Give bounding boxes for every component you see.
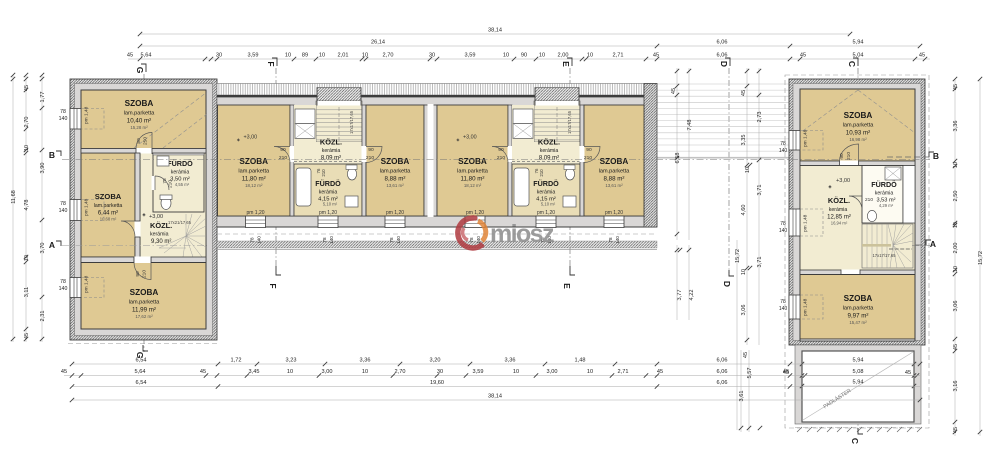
- svg-text:lam.parketta: lam.parketta: [238, 169, 270, 175]
- svg-text:15,72: 15,72: [735, 249, 741, 263]
- svg-text:kerámia: kerámia: [540, 148, 559, 154]
- svg-text:10: 10: [285, 53, 291, 59]
- svg-text:17x17/17,65: 17x17/17,65: [567, 110, 572, 134]
- svg-text:140: 140: [779, 306, 788, 312]
- svg-text:2,70: 2,70: [395, 369, 406, 375]
- svg-text:2,71: 2,71: [618, 369, 629, 375]
- svg-text:7,48: 7,48: [687, 120, 693, 131]
- svg-text:2,50: 2,50: [953, 191, 959, 202]
- svg-text:11,80 m²: 11,80 m²: [242, 176, 266, 183]
- svg-text:38,14: 38,14: [488, 394, 502, 400]
- svg-text:kerámia: kerámia: [150, 232, 169, 238]
- svg-text:3,77: 3,77: [677, 290, 683, 301]
- svg-text:1,77: 1,77: [40, 92, 46, 103]
- svg-text:2,31: 2,31: [40, 311, 46, 322]
- svg-text:45: 45: [905, 370, 911, 376]
- svg-text:SZOBA: SZOBA: [130, 288, 159, 297]
- svg-text:10: 10: [953, 222, 959, 228]
- svg-text:78: 78: [250, 237, 255, 243]
- svg-text:8,09 m²: 8,09 m²: [539, 156, 559, 162]
- svg-text:pm 1,20: pm 1,20: [386, 210, 404, 216]
- svg-text:2,00: 2,00: [558, 53, 569, 59]
- svg-text:3,11: 3,11: [24, 287, 30, 297]
- svg-text:38,14: 38,14: [488, 28, 502, 34]
- svg-text:lam.parketta: lam.parketta: [380, 169, 412, 175]
- svg-text:3,16: 3,16: [953, 381, 959, 392]
- svg-text:E: E: [562, 283, 572, 289]
- svg-text:45: 45: [743, 352, 749, 358]
- svg-text:90: 90: [521, 53, 527, 59]
- svg-text:17,62 m²: 17,62 m²: [135, 314, 153, 319]
- svg-text:45: 45: [24, 85, 30, 91]
- svg-text:6,06: 6,06: [717, 369, 728, 375]
- svg-text:3,00: 3,00: [547, 369, 558, 375]
- svg-text:C: C: [847, 61, 857, 67]
- svg-text:+3,00: +3,00: [463, 135, 477, 141]
- svg-text:F: F: [266, 61, 276, 66]
- svg-text:90: 90: [586, 147, 592, 153]
- svg-text:6,54: 6,54: [136, 358, 147, 364]
- svg-text:4,60: 4,60: [741, 205, 747, 216]
- svg-text:4,55 m²: 4,55 m²: [175, 182, 190, 187]
- svg-text:5,10 m²: 5,10 m²: [541, 202, 556, 207]
- svg-text:pm 1,48: pm 1,48: [84, 106, 90, 124]
- svg-text:210: 210: [846, 152, 852, 160]
- svg-text:140: 140: [59, 286, 68, 292]
- svg-text:5,94: 5,94: [853, 358, 864, 364]
- svg-text:pm 1,20: pm 1,20: [537, 210, 555, 216]
- svg-text:3,36: 3,36: [360, 358, 371, 364]
- svg-text:17x17/17,65: 17x17/17,65: [872, 253, 896, 258]
- svg-text:KÖZL.: KÖZL.: [320, 138, 342, 147]
- svg-text:2,70: 2,70: [24, 117, 30, 128]
- svg-text:45: 45: [953, 427, 959, 433]
- svg-text:3,06: 3,06: [741, 305, 747, 316]
- svg-text:E: E: [561, 61, 571, 67]
- svg-text:+3,00: +3,00: [836, 178, 850, 184]
- svg-text:90: 90: [368, 147, 374, 153]
- svg-text:pm 1,48: pm 1,48: [84, 198, 90, 216]
- svg-text:SZOBA: SZOBA: [381, 157, 410, 166]
- svg-text:SZOBA: SZOBA: [844, 111, 873, 120]
- svg-text:5,64: 5,64: [135, 369, 146, 375]
- svg-text:45: 45: [741, 90, 747, 96]
- svg-text:pm 1,48: pm 1,48: [803, 298, 809, 316]
- svg-text:26,14: 26,14: [371, 40, 385, 46]
- svg-text:lam.parketta: lam.parketta: [843, 306, 875, 312]
- svg-text:kerámia: kerámia: [537, 190, 556, 196]
- svg-text:3,45: 3,45: [249, 369, 260, 375]
- svg-text:FÜRDÖ: FÜRDÖ: [533, 179, 559, 188]
- svg-text:10: 10: [539, 53, 545, 59]
- svg-text:2,00: 2,00: [953, 243, 959, 254]
- svg-text:3,36: 3,36: [953, 121, 959, 132]
- svg-text:10: 10: [24, 145, 30, 151]
- svg-text:2,71: 2,71: [613, 53, 624, 59]
- svg-text:140: 140: [59, 116, 68, 122]
- svg-text:45: 45: [671, 88, 677, 94]
- svg-text:1,48: 1,48: [575, 358, 586, 364]
- svg-text:3,35: 3,35: [741, 135, 747, 146]
- svg-text:140: 140: [779, 148, 788, 154]
- svg-text:90: 90: [136, 138, 142, 144]
- svg-text:16,98 m²: 16,98 m²: [849, 137, 867, 142]
- svg-text:6,54: 6,54: [136, 380, 147, 386]
- svg-text:F: F: [268, 283, 278, 288]
- svg-text:2,01: 2,01: [338, 53, 349, 59]
- svg-text:15,47 m²: 15,47 m²: [849, 320, 867, 325]
- svg-text:10: 10: [503, 53, 509, 59]
- svg-text:SZOBA: SZOBA: [458, 157, 487, 166]
- svg-text:45: 45: [953, 84, 959, 90]
- svg-text:10: 10: [745, 167, 751, 173]
- svg-text:G: G: [135, 67, 145, 74]
- svg-text:78: 78: [608, 237, 613, 243]
- svg-text:+3,00: +3,00: [149, 214, 163, 220]
- svg-text:6,06: 6,06: [717, 380, 728, 386]
- svg-text:10,93 m²: 10,93 m²: [846, 130, 870, 137]
- svg-text:4,78: 4,78: [24, 200, 30, 211]
- svg-text:10: 10: [287, 369, 293, 375]
- svg-text:78: 78: [469, 237, 474, 243]
- svg-text:17x17/17,65: 17x17/17,65: [349, 110, 354, 134]
- svg-text:SZOBA: SZOBA: [125, 99, 154, 108]
- svg-text:10: 10: [741, 269, 747, 275]
- svg-text:210: 210: [142, 270, 148, 278]
- svg-text:3,36: 3,36: [505, 358, 516, 364]
- svg-text:90: 90: [498, 147, 504, 153]
- svg-text:SZOBA: SZOBA: [239, 157, 268, 166]
- svg-text:140: 140: [257, 236, 262, 244]
- svg-text:kerámia: kerámia: [319, 190, 338, 196]
- svg-text:3,90: 3,90: [40, 163, 46, 174]
- svg-text:45: 45: [953, 344, 959, 350]
- svg-text:13,61 m²: 13,61 m²: [386, 183, 404, 188]
- svg-text:3,71: 3,71: [757, 257, 763, 268]
- svg-text:lam.parketta: lam.parketta: [129, 300, 161, 306]
- svg-text:◈: ◈: [142, 212, 146, 217]
- svg-text:11,68: 11,68: [11, 190, 17, 204]
- svg-text:kerámia: kerámia: [875, 191, 894, 197]
- svg-text:4,22: 4,22: [689, 290, 695, 301]
- svg-text:FÜRDÖ: FÜRDÖ: [871, 180, 897, 189]
- svg-text:3,59: 3,59: [248, 53, 259, 59]
- svg-text:89: 89: [302, 53, 308, 59]
- svg-text:78: 78: [60, 201, 66, 207]
- svg-text:kerámia: kerámia: [322, 148, 341, 154]
- svg-text:kerámia: kerámia: [171, 170, 190, 176]
- svg-text:10,40 m²: 10,40 m²: [127, 118, 151, 125]
- svg-text:210: 210: [321, 169, 326, 177]
- svg-text:KÖZL.: KÖZL.: [538, 138, 560, 147]
- svg-text:11,80 m²: 11,80 m²: [461, 176, 485, 183]
- svg-text:140: 140: [779, 228, 788, 234]
- svg-text:5,10 m²: 5,10 m²: [323, 202, 338, 207]
- svg-text:A: A: [49, 240, 55, 250]
- svg-text:lam.parketta: lam.parketta: [457, 169, 489, 175]
- svg-text:8,88 m²: 8,88 m²: [604, 176, 625, 183]
- svg-text:10: 10: [587, 369, 593, 375]
- svg-text:140: 140: [59, 208, 68, 214]
- svg-text:2,73: 2,73: [757, 112, 763, 123]
- svg-text:90: 90: [135, 271, 141, 277]
- svg-text:78: 78: [322, 237, 327, 243]
- svg-text:90: 90: [280, 147, 286, 153]
- svg-text:FÜRDÖ: FÜRDÖ: [315, 179, 341, 188]
- svg-text:90: 90: [839, 153, 845, 159]
- svg-text:5,94: 5,94: [853, 40, 864, 46]
- svg-text:lam.parketta: lam.parketta: [843, 123, 875, 129]
- svg-text:8,88 m²: 8,88 m²: [385, 176, 406, 183]
- svg-text:pm 1,48: pm 1,48: [803, 129, 809, 147]
- svg-text:15,72: 15,72: [978, 251, 984, 265]
- svg-text:210: 210: [366, 155, 374, 161]
- svg-text:pm 1,20: pm 1,20: [246, 210, 264, 216]
- svg-text:5,64: 5,64: [141, 53, 152, 59]
- svg-text:6,06: 6,06: [717, 358, 728, 364]
- svg-text:140: 140: [615, 236, 620, 244]
- svg-text:2,70: 2,70: [383, 53, 394, 59]
- svg-text:◈: ◈: [828, 184, 832, 189]
- svg-text:3,23: 3,23: [286, 358, 297, 364]
- svg-text:78: 78: [60, 109, 66, 115]
- svg-text:210: 210: [497, 155, 505, 161]
- svg-text:10: 10: [319, 53, 325, 59]
- svg-text:lam.parketta: lam.parketta: [599, 169, 631, 175]
- svg-text:G: G: [135, 352, 145, 359]
- svg-text:140: 140: [396, 236, 401, 244]
- svg-text:5,94: 5,94: [853, 380, 864, 386]
- svg-text:210: 210: [865, 197, 873, 203]
- svg-text:3,61: 3,61: [739, 391, 745, 402]
- svg-text:pm 1,48: pm 1,48: [84, 275, 90, 293]
- svg-text:KÖZL.: KÖZL.: [828, 196, 850, 205]
- svg-text:18,12 m²: 18,12 m²: [245, 183, 263, 188]
- svg-text:6,06: 6,06: [717, 40, 728, 46]
- svg-text:45: 45: [200, 369, 206, 375]
- svg-text:D: D: [722, 281, 732, 287]
- svg-text:5,57: 5,57: [747, 368, 753, 379]
- svg-text:pm 1,20: pm 1,20: [605, 210, 623, 216]
- svg-text:3,00: 3,00: [322, 369, 333, 375]
- svg-text:SZOBA: SZOBA: [844, 294, 873, 303]
- svg-text:pm 1,20: pm 1,20: [319, 210, 337, 216]
- svg-text:45: 45: [783, 369, 789, 375]
- svg-text:17x21/17,65: 17x21/17,65: [168, 220, 192, 225]
- svg-text:140: 140: [476, 236, 481, 244]
- svg-text:10: 10: [513, 369, 519, 375]
- svg-text:210: 210: [584, 155, 592, 161]
- svg-text:15,28 m²: 15,28 m²: [130, 125, 148, 130]
- svg-text:210: 210: [279, 155, 287, 161]
- svg-text:250: 250: [143, 137, 149, 145]
- svg-text:A: A: [930, 239, 936, 249]
- svg-text:3,71: 3,71: [757, 185, 763, 196]
- svg-text:FÜRDÖ: FÜRDÖ: [167, 159, 193, 168]
- svg-text:9,97 m²: 9,97 m²: [848, 313, 869, 320]
- svg-text:6,58: 6,58: [675, 153, 681, 164]
- svg-text:pm 1,20: pm 1,20: [466, 210, 484, 216]
- svg-text:kerámia: kerámia: [829, 207, 848, 213]
- svg-text:210: 210: [539, 169, 544, 177]
- svg-text:3,20: 3,20: [430, 358, 441, 364]
- svg-text:140: 140: [329, 236, 334, 244]
- svg-text:8,09 m²: 8,09 m²: [321, 156, 341, 162]
- svg-text:18,12 m²: 18,12 m²: [464, 183, 482, 188]
- svg-text:45: 45: [919, 53, 925, 59]
- svg-text:miosz: miosz: [490, 220, 554, 248]
- svg-text:3,59: 3,59: [473, 369, 484, 375]
- svg-text:D: D: [719, 61, 729, 67]
- svg-text:3,70: 3,70: [40, 243, 46, 254]
- svg-text:lam.parketta: lam.parketta: [94, 203, 123, 209]
- svg-text:+3,00: +3,00: [244, 135, 258, 141]
- svg-text:B: B: [933, 151, 939, 161]
- svg-text:45: 45: [127, 53, 133, 59]
- svg-text:3,59: 3,59: [465, 53, 476, 59]
- svg-text:lam.parketta: lam.parketta: [124, 111, 156, 117]
- svg-text:78: 78: [389, 237, 394, 243]
- svg-text:5,08: 5,08: [853, 369, 864, 375]
- svg-text:4,29 m²: 4,29 m²: [879, 203, 894, 208]
- svg-text:10: 10: [362, 369, 368, 375]
- svg-text:13,61 m²: 13,61 m²: [605, 183, 623, 188]
- svg-text:16,94 m²: 16,94 m²: [831, 221, 848, 226]
- svg-text:45: 45: [61, 369, 67, 375]
- svg-text:SZOBA: SZOBA: [600, 157, 629, 166]
- svg-text:1,72: 1,72: [231, 358, 242, 364]
- svg-text:B: B: [49, 150, 55, 160]
- svg-text:19,60: 19,60: [430, 380, 444, 386]
- svg-text:3,06: 3,06: [953, 301, 959, 312]
- svg-text:78: 78: [60, 279, 66, 285]
- svg-text:C: C: [850, 438, 860, 444]
- svg-text:11,99 m²: 11,99 m²: [132, 307, 156, 314]
- svg-text:pm 1,48: pm 1,48: [803, 214, 809, 232]
